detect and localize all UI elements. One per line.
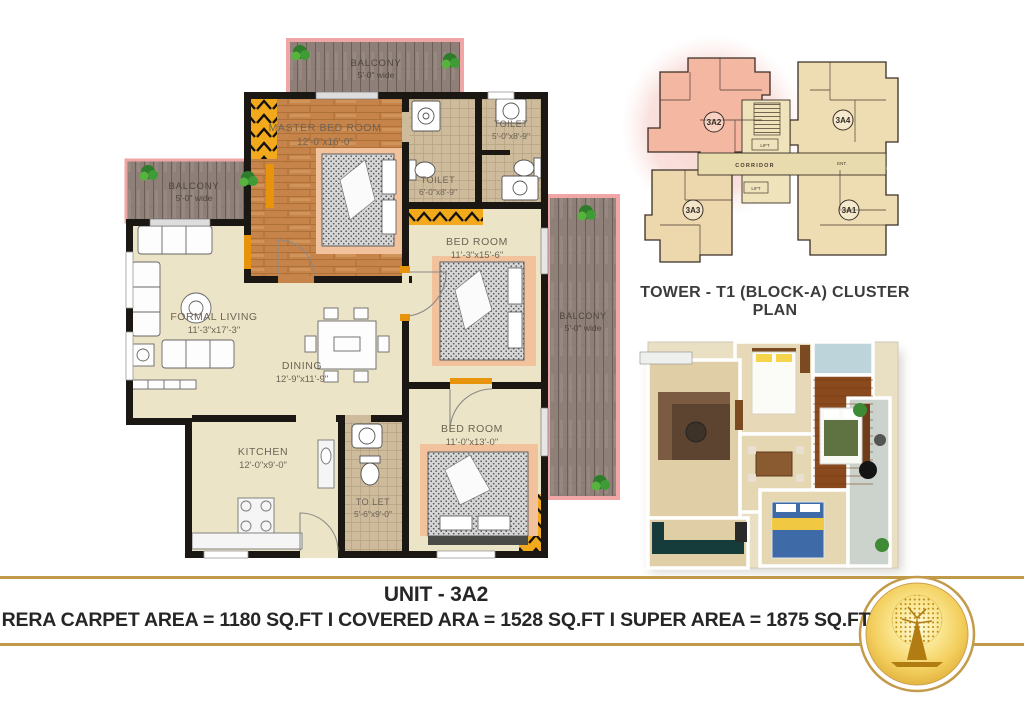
- label-bedroom-right-size: 11'-3"x15'-6": [451, 250, 503, 261]
- cluster-corridor: [698, 153, 886, 175]
- bedroom-right-bed: [432, 256, 536, 366]
- label-living-size: 11'-3"x17'-3": [188, 325, 240, 336]
- cluster-plan-title: TOWER - T1 (BLOCK-A) CLUSTER PLAN: [620, 284, 930, 320]
- cluster-label-bottomright: 3A1: [842, 206, 857, 215]
- unit-2d-floorplan: MASTER BED ROOM 12'-0"x16'-0" TOILET 6'-…: [126, 40, 618, 558]
- label-balcony-top-size: 5'-0" wide: [358, 70, 395, 80]
- label-balcony-right-name: BALCONY: [559, 311, 606, 321]
- label-toilet-b-size: 5'-0"x8'-9": [492, 131, 530, 141]
- label-master-size: 12'-0"x16'-0": [297, 137, 353, 148]
- label-kitchen-size: 12'-0"x9'-0": [239, 460, 287, 471]
- label-bedroom-bottom-size: 11'-0"x13'-0": [446, 437, 498, 448]
- footer-area-line: RERA CARPET AREA = 1180 SQ.FT I COVERED …: [0, 609, 872, 632]
- label-balcony-right-size: 5'-0" wide: [565, 323, 602, 333]
- master-bed: [316, 148, 406, 254]
- cluster-stairs: [754, 103, 780, 135]
- cluster-label-3a2: 3A2: [707, 118, 722, 127]
- label-toilet-bottom-name: TO LET: [356, 497, 390, 507]
- label-toilet-a-size: 6'-0"x8'-9": [419, 187, 457, 197]
- golden-tree-logo-icon: [860, 577, 974, 691]
- balcony-right-deck: [548, 196, 618, 498]
- label-master-name: MASTER BED ROOM: [269, 122, 382, 134]
- gold-rule-top: [0, 576, 1024, 579]
- label-bedroom-bottom-name: BED ROOM: [441, 423, 503, 435]
- label-balcony-left-size: 5'-0" wide: [176, 193, 213, 203]
- footer-unit-title: UNIT - 3A2: [0, 583, 872, 607]
- cluster-label-bottomleft: 3A3: [686, 206, 701, 215]
- cluster-lift2-label: LIFT: [751, 186, 761, 191]
- label-toilet-a-name: TOILET: [421, 175, 455, 185]
- cluster-corridor-label: CORRIDOR: [735, 163, 775, 169]
- label-kitchen-name: KITCHEN: [238, 446, 288, 458]
- label-living-name: FORMAL LIVING: [170, 311, 257, 323]
- label-balcony-top-name: BALCONY: [350, 58, 401, 69]
- label-balcony-left-name: BALCONY: [168, 181, 219, 192]
- unit-3d-render: [640, 342, 902, 572]
- label-dining-name: DINING: [282, 360, 322, 372]
- cluster-label-topright: 3A4: [836, 116, 851, 125]
- bedroom-bottom-bed: [420, 444, 538, 545]
- cluster-lift1-label: LIFT: [760, 143, 770, 148]
- cluster-plan: 3A2 3A4 3A1 3A3 CORRIDOR LIFT LIFT ENT.: [621, 35, 898, 262]
- cluster-ent-label: ENT.: [837, 161, 847, 166]
- label-bedroom-right-name: BED ROOM: [446, 236, 508, 248]
- wardrobe-bedroom-right: [409, 209, 483, 225]
- label-toilet-b-name: TOILET: [494, 119, 528, 129]
- label-toilet-bottom-size: 5'-6"x9'-0": [354, 509, 392, 519]
- label-dining-size: 12'-9"x11'-9": [276, 374, 328, 385]
- brochure-page: MASTER BED ROOM 12'-0"x16'-0" TOILET 6'-…: [0, 0, 1024, 719]
- cluster-lift-lower-room: [742, 175, 790, 203]
